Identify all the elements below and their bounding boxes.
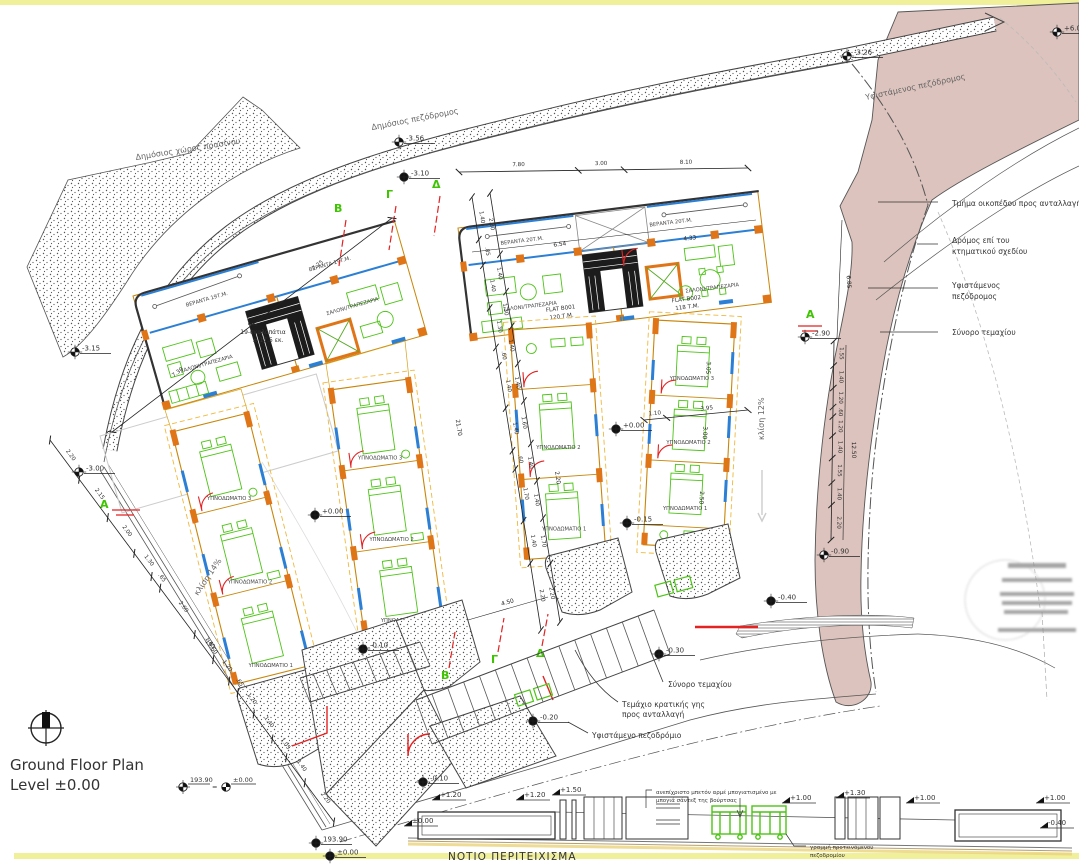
svg-text:.60: .60 bbox=[837, 407, 843, 416]
svg-text:πεζόδρομος: πεζόδρομος bbox=[952, 292, 997, 301]
svg-text:1.20: 1.20 bbox=[837, 420, 843, 433]
svg-text:Τμήμα οικοπέδου προς ανταλλαγή: Τμήμα οικοπέδου προς ανταλλαγή bbox=[951, 199, 1079, 208]
elevation-marker: +1.00 bbox=[1036, 794, 1070, 803]
elevation-marker: -2.90 bbox=[798, 330, 841, 345]
elevation-marker: -0.40 bbox=[764, 594, 807, 609]
b001-bed2-label: ΥΠΝΟΔΩΜΑΤΙΟ 2 bbox=[535, 445, 580, 451]
svg-text:2.20: 2.20 bbox=[547, 587, 555, 601]
svg-text:+1.00: +1.00 bbox=[914, 794, 935, 802]
svg-text:3.00: 3.00 bbox=[595, 161, 608, 167]
note-sidewalk-2: πεζοδρομίου bbox=[810, 852, 845, 859]
site-plan-canvas: Δημόσιος χώρος πρασίνου Υφιστάμενος πεζό… bbox=[0, 0, 1079, 865]
elevator-a bbox=[317, 319, 359, 361]
svg-text:1.40: 1.40 bbox=[837, 371, 843, 384]
svg-text:+6.00: +6.00 bbox=[1064, 25, 1079, 33]
section-letter-d-top: Δ bbox=[432, 178, 441, 191]
svg-text:1.20: 1.20 bbox=[837, 391, 843, 404]
svg-text:1.40: 1.40 bbox=[507, 339, 515, 353]
svg-text:+1.00: +1.00 bbox=[790, 794, 811, 802]
svg-text:-0.30: -0.30 bbox=[666, 647, 684, 655]
svg-text:.60: .60 bbox=[500, 351, 507, 361]
elevation-marker: -0.30 bbox=[652, 647, 695, 662]
dim-305: 3.05 bbox=[704, 361, 711, 375]
svg-text:προς ανταλλαγή: προς ανταλλαγή bbox=[622, 710, 685, 719]
svg-text:1.55: 1.55 bbox=[838, 347, 844, 360]
svg-text:1.40: 1.40 bbox=[295, 759, 308, 773]
a002-bed2-label: ΥΠΝΟΔΩΜΑΤΙΟ 2 bbox=[368, 537, 413, 543]
svg-text:1.40: 1.40 bbox=[504, 379, 512, 393]
svg-text:Σύνορο τεμαχίου: Σύνορο τεμαχίου bbox=[668, 680, 732, 689]
svg-text:2.20: 2.20 bbox=[64, 449, 77, 463]
elevation-marker: +1.00 bbox=[782, 794, 816, 803]
section-letter-b-bottom: Β bbox=[441, 669, 449, 682]
svg-text:-0.10: -0.10 bbox=[370, 642, 388, 650]
a001-bed3-label: ΥΠΝΟΔΩΜΑΤΙΟ 3 bbox=[206, 496, 251, 502]
svg-text:-0.40: -0.40 bbox=[1048, 819, 1066, 827]
svg-text:.65: .65 bbox=[156, 573, 166, 584]
dim-300: 3.00 bbox=[701, 426, 708, 440]
svg-text:-0.15: -0.15 bbox=[634, 516, 652, 524]
svg-text:-2.90: -2.90 bbox=[812, 330, 830, 338]
svg-text:3.95: 3.95 bbox=[700, 405, 713, 412]
svg-text:-3.56: -3.56 bbox=[406, 135, 425, 143]
building-b: ΒΕΡΑΝΤΑ 20Τ.Μ. ΒΕΡΑΝΤΑ 20Τ.Μ. ΣΑΛΟΝΙ/ΤΡΑ… bbox=[456, 191, 773, 341]
svg-text:±0.00: ±0.00 bbox=[412, 817, 433, 825]
svg-text:6.85: 6.85 bbox=[845, 275, 852, 289]
page-subtitle: Level ±0.00 bbox=[10, 776, 100, 794]
a001-bed2-label: ΥΠΝΟΔΩΜΑΤΙΟ 2 bbox=[227, 580, 272, 586]
elevation-marker: +1.30 bbox=[836, 789, 870, 798]
a001-bed1-label: ΥΠΝΟΔΩΜΑΤΙΟ 1 bbox=[248, 663, 293, 669]
svg-text:+1.50: +1.50 bbox=[560, 786, 581, 794]
architectural-drawing: Δημόσιος χώρος πρασίνου Υφιστάμενος πεζό… bbox=[0, 0, 1079, 865]
svg-text:Υφιστάμενο πεζοδρόμιο: Υφιστάμενο πεζοδρόμιο bbox=[591, 731, 682, 740]
svg-text:193.90: 193.90 bbox=[190, 776, 213, 784]
svg-text:12.50: 12.50 bbox=[850, 442, 856, 459]
note-concrete-1: ανεπίχριστο μπετόν αρμέ μπογιατισμένο με bbox=[656, 789, 777, 796]
note-concrete-2: μπογιά σάντεξ της βούρτσας bbox=[656, 797, 737, 804]
svg-text:2.20: 2.20 bbox=[538, 589, 546, 603]
svg-text:2.00: 2.00 bbox=[120, 525, 133, 539]
svg-text:+1.20: +1.20 bbox=[440, 791, 461, 799]
svg-text:4.50: 4.50 bbox=[501, 598, 515, 607]
svg-text:7.80: 7.80 bbox=[512, 162, 525, 168]
bottom-leaders: Σύνορο τεμαχίου Τεμάχιο κρατικής γης προ… bbox=[568, 650, 732, 740]
elevation-marker: +1.20 bbox=[516, 791, 550, 800]
south-wall-section: ανεπίχριστο μπετόν αρμέ μπογιατισμένο με… bbox=[408, 789, 1072, 863]
svg-text:1.40: 1.40 bbox=[836, 441, 842, 454]
svg-text:21.70: 21.70 bbox=[454, 419, 463, 437]
b002-bed1-label: ΥΠΝΟΔΩΜΑΤΙΟ 1 bbox=[662, 506, 707, 512]
existing-sidewalk-strip: Υφιστάμενος πεζόδρομος bbox=[815, 3, 1079, 706]
elevation-marker: +0.00 bbox=[609, 422, 652, 437]
svg-text:1.10: 1.10 bbox=[648, 410, 661, 417]
yellow-edge-top bbox=[0, 0, 1079, 5]
svg-text:±0.00: ±0.00 bbox=[337, 849, 358, 857]
wing-b002: ΥΠΝΟΔΩΜΑΤΙΟ 3 ΥΠΝΟΔΩΜΑΤΙΟ 2 ΥΠΝΟΔΩΜΑΤΙΟ … bbox=[637, 312, 741, 557]
elevator-b bbox=[646, 263, 682, 299]
wing-a002: ΥΠΝΟΔΩΜΑΤΙΟ 3 ΥΠΝΟΔΩΜΑΤΙΟ 2 ΥΠΝΟΔΩΜΑΤΙΟ … bbox=[323, 370, 450, 641]
dim-250: 2.50 bbox=[697, 491, 704, 505]
waste-bins-elevation bbox=[712, 806, 786, 839]
svg-text:8.10: 8.10 bbox=[680, 160, 693, 166]
svg-text:-3.00: -3.00 bbox=[86, 465, 104, 473]
elevation-marker: +1.50 bbox=[552, 786, 586, 795]
dimension-chain: 7.803.008.10 bbox=[456, 160, 751, 175]
elevation-marker: +1.20 bbox=[432, 791, 466, 800]
svg-text:=: = bbox=[212, 783, 217, 791]
svg-text:1.40: 1.40 bbox=[477, 211, 485, 225]
svg-text:Υφιστάμενος: Υφιστάμενος bbox=[951, 281, 1000, 290]
svg-text:-3.15: -3.15 bbox=[82, 345, 100, 353]
elevation-marker: +1.00 bbox=[906, 794, 940, 803]
section-letter-b-top: Β bbox=[334, 202, 342, 215]
svg-text:Σύνορο τεμαχίου: Σύνορο τεμαχίου bbox=[952, 328, 1016, 337]
svg-text:±0.00: ±0.00 bbox=[233, 776, 253, 784]
wing-a001: ΥΠΝΟΔΩΜΑΤΙΟ 3 ΥΠΝΟΔΩΜΑΤΙΟ 2 ΥΠΝΟΔΩΜΑΤΙΟ … bbox=[164, 403, 320, 693]
svg-text:Δρόμος επί του: Δρόμος επί του bbox=[952, 236, 1010, 245]
svg-text:+1.30: +1.30 bbox=[844, 789, 865, 797]
svg-text:-0.10: -0.10 bbox=[430, 775, 448, 783]
svg-text:Τεμάχιο κρατικής γης: Τεμάχιο κρατικής γης bbox=[621, 700, 705, 709]
svg-text:+1.20: +1.20 bbox=[524, 791, 545, 799]
slope-arrow bbox=[758, 470, 766, 521]
svg-text:κτηματικού σχεδίου: κτηματικού σχεδίου bbox=[952, 247, 1027, 256]
b001-bed1-label: ΥΠΝΟΔΩΜΑΤΙΟ 1 bbox=[541, 527, 586, 533]
label-steps-1: 19-σκαλοπάτια bbox=[240, 329, 286, 336]
svg-text:-3.26: -3.26 bbox=[854, 49, 873, 57]
svg-text:.60: .60 bbox=[516, 454, 523, 464]
elevation-marker: +0.00 bbox=[308, 508, 351, 523]
stair-core-b bbox=[582, 248, 643, 312]
label-public-walkway: Δημόσιος πεζόδρομος bbox=[370, 105, 459, 132]
section-letter-g-top: Γ bbox=[386, 188, 393, 201]
benchmark-pair: 193.90 = ±0.00 bbox=[176, 776, 256, 794]
b002-bed2-label: ΥΠΝΟΔΩΜΑΤΙΟ 2 bbox=[665, 440, 710, 446]
wing-b001: ΥΠΝΟΔΩΜΑΤΙΟ 2 ΥΠΝΟΔΩΜΑΤΙΟ 1 bbox=[503, 316, 612, 568]
svg-text:-3.10: -3.10 bbox=[411, 170, 429, 178]
svg-text:1.40: 1.40 bbox=[511, 422, 519, 436]
svg-text:+0.00: +0.00 bbox=[623, 422, 644, 430]
section-letter-g-bottom: Γ bbox=[491, 653, 498, 666]
north-arrow bbox=[28, 710, 64, 746]
svg-text:1.40: 1.40 bbox=[836, 488, 842, 501]
svg-text:+1.00: +1.00 bbox=[1044, 794, 1065, 802]
svg-text:193.90: 193.90 bbox=[323, 836, 348, 844]
stamp-illegible bbox=[965, 560, 1076, 640]
svg-text:2.20: 2.20 bbox=[835, 516, 841, 529]
svg-text:-0.90: -0.90 bbox=[831, 548, 849, 556]
a002-bed3-label: ΥΠΝΟΔΩΜΑΤΙΟ 3 bbox=[357, 456, 402, 462]
note-sidewalk-1: γραμμή προτεινόμενου bbox=[810, 844, 873, 851]
b002-bed3-label: ΥΠΝΟΔΩΜΑΤΙΟ 3 bbox=[669, 376, 714, 382]
south-section-title: ΝΟΤΙΟ ΠΕΡΙΤΕΙΧΙΣΜΑ bbox=[448, 851, 577, 863]
page-title: Ground Floor Plan bbox=[10, 756, 144, 774]
svg-text:-0.20: -0.20 bbox=[540, 714, 558, 722]
svg-text:1.55: 1.55 bbox=[836, 464, 842, 477]
section-letter-a-right: Α bbox=[806, 308, 815, 321]
svg-text:+0.00: +0.00 bbox=[322, 508, 343, 516]
svg-text:-0.40: -0.40 bbox=[778, 594, 796, 602]
label-slope-12: κλίση 12% bbox=[757, 397, 766, 440]
label-steps-2: ± 17.5 εκ. bbox=[253, 337, 284, 344]
